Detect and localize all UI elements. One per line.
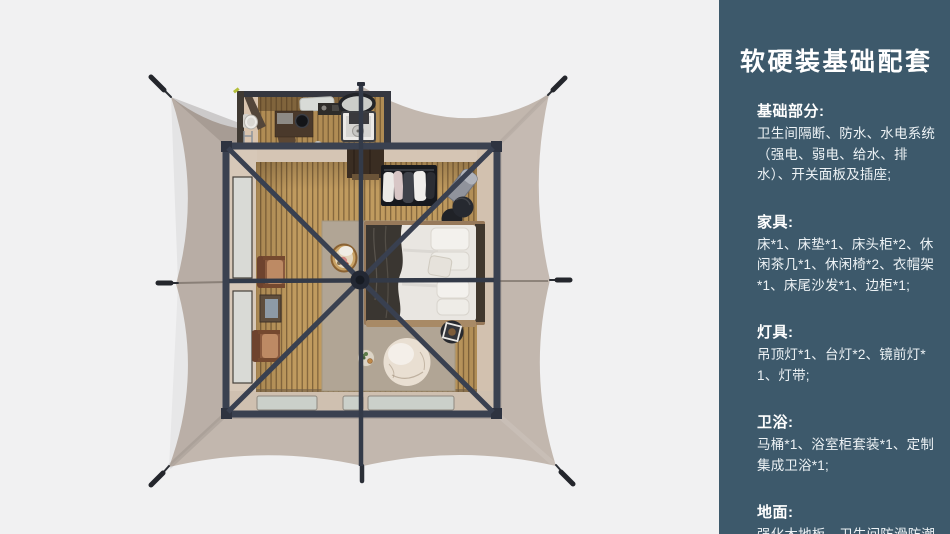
section-lighting: 灯具: 吊顶灯*1、台灯*2、镜前灯*1、灯带; — [757, 323, 936, 386]
garment — [425, 172, 435, 199]
window-left-lower — [233, 291, 252, 383]
tray-side-table — [441, 321, 464, 344]
annex-wall-right — [384, 91, 391, 147]
pole-tip — [357, 82, 365, 86]
garment — [382, 172, 394, 202]
pillow — [437, 299, 469, 315]
panel-title: 软硬装基础配套 — [740, 46, 936, 78]
lounge-chair-2 — [252, 330, 280, 362]
passage — [347, 146, 384, 180]
garment — [393, 171, 404, 200]
lounge-chair-1 — [257, 256, 285, 288]
section-bathroom-title: 卫浴: — [757, 413, 936, 432]
bathroom-annex — [233, 87, 391, 150]
coffee-machine — [296, 115, 309, 128]
window-bottom-3 — [368, 396, 454, 410]
info-panel: 软硬装基础配套 基础部分: 卫生间隔断、防水、水电系统（强电、弱电、给水、排水）… — [719, 0, 950, 534]
garment — [413, 171, 426, 201]
window-bottom-1 — [257, 396, 317, 410]
window-left-upper — [233, 177, 252, 278]
duvet-fold — [402, 284, 438, 286]
section-basics-title: 基础部分: — [757, 102, 936, 121]
page: 软硬装基础配套 基础部分: 卫生间隔断、防水、水电系统（强电、弱电、给水、排水）… — [0, 0, 950, 534]
section-bathroom-body: 马桶*1、浴室柜套装*1、定制集成卫浴*1; — [757, 435, 936, 476]
section-flooring-body: 强化木地板、卫生间防滑防潮石塑板; — [757, 525, 936, 534]
duvet-fold — [403, 250, 438, 252]
cushion — [427, 255, 452, 278]
section-furniture-title: 家具: — [757, 213, 936, 232]
section-basics: 基础部分: 卫生间隔断、防水、水电系统（强电、弱电、给水、排水）、开关面板及插座… — [757, 102, 936, 186]
section-furniture: 家具: 床*1、床垫*1、床头柜*2、休闲茶几*1、休闲椅*2、衣帽架*1、床尾… — [757, 213, 936, 297]
bed — [364, 221, 485, 327]
pillow — [431, 228, 469, 250]
section-lighting-body: 吊顶灯*1、台灯*2、镜前灯*1、灯带; — [757, 345, 936, 386]
annex-wall-left — [237, 91, 244, 147]
section-furniture-body: 床*1、床垫*1、床头柜*2、休闲茶几*1、休闲椅*2、衣帽架*1、床尾沙发*1… — [757, 235, 936, 297]
round-stool — [453, 197, 474, 218]
section-lighting-title: 灯具: — [757, 323, 936, 342]
center-hub-cap — [356, 276, 365, 285]
counter-item — [332, 105, 339, 111]
section-flooring: 地面: 强化木地板、卫生间防滑防潮石塑板; — [757, 503, 936, 534]
section-bathroom: 卫浴: 马桶*1、浴室柜套装*1、定制集成卫浴*1; — [757, 413, 936, 476]
headboard — [475, 224, 485, 322]
canvas-seam-left — [179, 282, 227, 283]
clothes-rack — [381, 165, 437, 206]
toilet — [243, 114, 258, 129]
garment — [402, 172, 414, 203]
section-flooring-title: 地面: — [757, 503, 936, 522]
wall-shelf — [260, 295, 281, 322]
shower-unit — [342, 112, 375, 141]
pillow — [437, 280, 469, 298]
section-basics-body: 卫生间隔断、防水、水电系统（强电、弱电、给水、排水）、开关面板及插座; — [757, 124, 936, 186]
counter-item — [322, 106, 327, 111]
tent-floorplan-image — [0, 0, 719, 534]
